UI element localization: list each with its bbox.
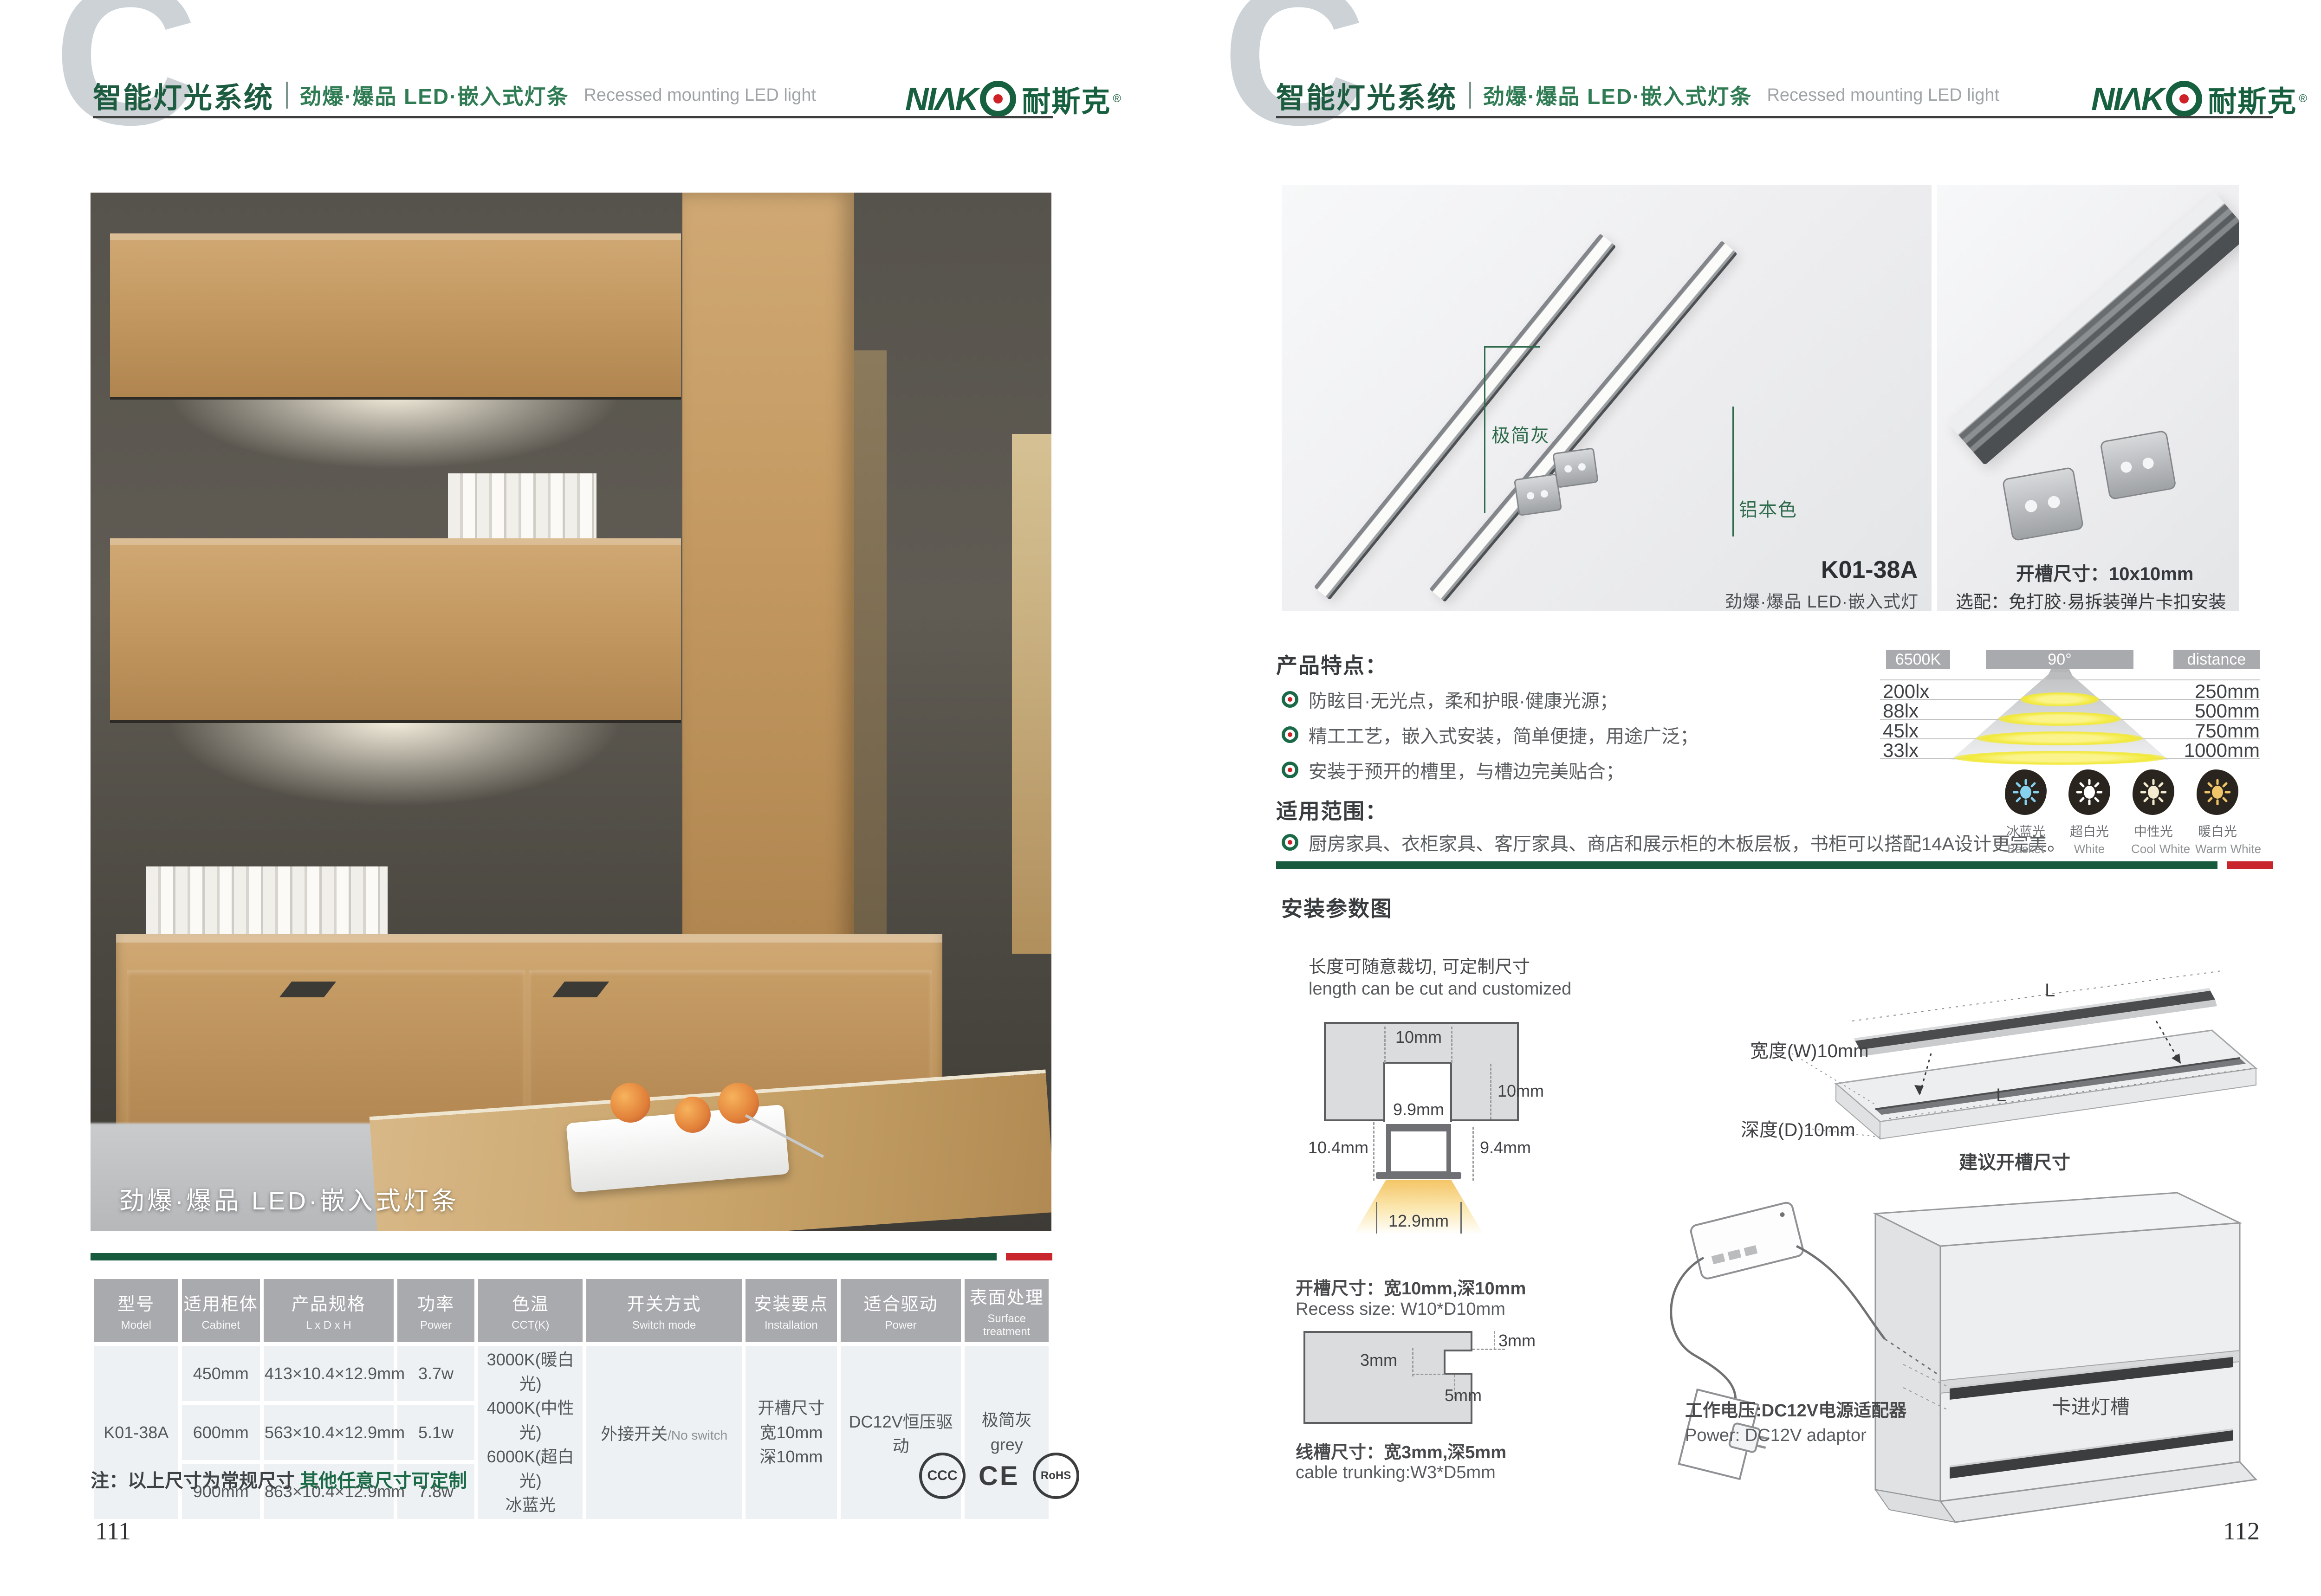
- rohs-icon: RoHS: [1033, 1453, 1079, 1499]
- groove-board-diagram: L L 宽度(W)10mm 深度(D)10mm 建议开槽尺寸: [1736, 965, 2275, 1179]
- feature-item: 安装于预开的槽里，与槽边完美贴合；: [1282, 756, 1624, 783]
- cabinet-install-illustration: 工作电压:DC12V电源适配器 Power: DC12V adaptor 卡进灯…: [1643, 1170, 2284, 1555]
- photo-shelf-lower: [110, 538, 681, 720]
- label-grey-finish: 极简灰: [1491, 420, 1550, 447]
- header-subtitle-cn: 劲爆·爆品 LED·嵌入式灯条: [300, 80, 569, 110]
- led-strip-grey: [1314, 233, 1616, 600]
- trunking-size-cn: 线槽尺寸：宽3mm,深5mm: [1296, 1438, 1506, 1463]
- product-photo-main: 极简灰 铝本色 K01-38A 劲爆·爆品 LED·嵌入式灯条: [1282, 185, 1932, 611]
- separator-bar: [91, 1253, 1052, 1260]
- chart-lux-4: 33lx: [1883, 739, 1952, 762]
- recess-size-cn: 开槽尺寸：宽10mm,深10mm: [1296, 1274, 1526, 1299]
- profile-channel: [1386, 1124, 1451, 1176]
- page-header: 智能灯光系统 劲爆·爆品 LED·嵌入式灯条 Recessed mounting…: [1276, 74, 1999, 116]
- dim-line: [1451, 1027, 1452, 1063]
- cell-power-450: 3.7w: [397, 1346, 474, 1401]
- separator-green: [1276, 861, 2217, 869]
- light-distribution-chart: 6500K 90° distance 200lx 88lx 45lx 33lx …: [1880, 646, 2265, 846]
- trunking-notch: [1444, 1350, 1472, 1375]
- sun-icon: [2197, 769, 2238, 815]
- mounting-clip-small-2: [1552, 447, 1599, 488]
- header-divider: [1469, 82, 1471, 109]
- aluminum-profile-closeup: [1948, 192, 2239, 465]
- mounting-clip-large-2: [2100, 430, 2177, 500]
- col-switch: 开关方式Switch mode: [586, 1279, 742, 1342]
- col-driver: 适合驱动Power: [841, 1279, 961, 1342]
- feature-item: 精工工艺，嵌入式安装，简单便捷，用途广泛；: [1282, 721, 1699, 748]
- led-strip-aluminum: [1429, 240, 1738, 602]
- scope-title: 适用范围：: [1276, 795, 1387, 825]
- dim-line: [1412, 1348, 1413, 1376]
- power-voltage-en: Power: DC12V adaptor: [1685, 1426, 1867, 1446]
- col-surface: 表面处理Surface treatment: [965, 1279, 1049, 1342]
- brand-registered-mark: ®: [1113, 92, 1121, 105]
- label-leader-line: [1484, 346, 1540, 348]
- cell-cct: 3000K(暖白光) 4000K(中性光) 6000K(超白光) 冰蓝光: [478, 1346, 583, 1519]
- cable-trunking-diagram: 3mm 3mm 5mm: [1290, 1327, 1550, 1429]
- dim-depth: 10mm: [1498, 1081, 1544, 1101]
- product-photo-caption: 劲爆·爆品 LED·嵌入式灯条: [1724, 588, 1919, 611]
- label-leader-line: [1732, 407, 1734, 536]
- nisko-logo: NIΛK 耐斯克 ®: [2091, 78, 2307, 120]
- product-photo-detail: 开槽尺寸：10x10mm 选配：免打胶·易拆装弹片卡扣安装: [1937, 185, 2239, 611]
- table-row: K01-38A 450mm 413×10.4×12.9mm 3.7w 3000K…: [94, 1346, 1049, 1401]
- cct-icon-ice-blue: 冰蓝光Basket: [2003, 769, 2048, 856]
- dim-top-width: 10mm: [1391, 1027, 1446, 1047]
- col-cabinet: 适用柜体Cabinet: [182, 1279, 260, 1342]
- note-highlight: 其他任意尺寸可定制: [300, 1471, 467, 1491]
- cell-size-450: 413×10.4×12.9mm: [264, 1346, 394, 1401]
- page-number: 112: [2223, 1517, 2260, 1545]
- header-divider: [286, 82, 288, 109]
- chart-distance-2: 500mm: [2177, 700, 2260, 722]
- cell-power-600: 5.1w: [397, 1405, 474, 1460]
- install-title: 安装参数图: [1281, 892, 1393, 923]
- page-left: C 智能灯光系统 劲爆·爆品 LED·嵌入式灯条 Recessed mounti…: [0, 0, 1168, 1596]
- chart-header-distance: distance: [2173, 650, 2260, 669]
- dim-length-groove: L: [1996, 1085, 2006, 1106]
- product-model: K01-38A: [1815, 556, 1918, 584]
- header-rule: [93, 116, 1053, 118]
- chart-lux-1: 200lx: [1883, 680, 1952, 703]
- detail-option-text: 选配：免打胶·易拆装弹片卡扣安装: [1956, 588, 2234, 611]
- photo-cabinet-side: [854, 350, 887, 944]
- dim-line: [1376, 1202, 1377, 1234]
- chart-lux-2: 88lx: [1883, 700, 1952, 722]
- cross-section-diagram: 10mm 10mm 9.9mm 10.4mm 9.4mm 12.9mm: [1290, 1016, 1550, 1239]
- col-install: 安装要点Installation: [746, 1279, 837, 1342]
- power-voltage-cn: 工作电压:DC12V电源适配器: [1685, 1396, 1906, 1422]
- cut-note-en: length can be cut and customized: [1309, 979, 1571, 999]
- photo-shelf-upper: [110, 233, 681, 397]
- dim-right-height: 9.4mm: [1480, 1138, 1531, 1157]
- chart-distance-1: 250mm: [2177, 680, 2260, 703]
- chart-distance-4: 1000mm: [2177, 739, 2260, 762]
- dim-line: [1490, 1064, 1491, 1119]
- dim-depth-label: 深度(D)10mm: [1741, 1115, 1855, 1142]
- brand-o-icon: [2166, 81, 2202, 117]
- cct-icon-warm-white: 暖白光Warm White: [2195, 769, 2240, 856]
- chart-light-pool-4: [1954, 751, 2165, 765]
- col-size: 产品规格L x D x H: [264, 1279, 394, 1342]
- chart-light-pool-2: [1998, 712, 2121, 726]
- nisko-logo: NIΛK 耐斯克 ®: [905, 78, 1121, 120]
- bullet-icon: [1282, 726, 1298, 743]
- brand-latin-text: NIΛK: [905, 80, 977, 117]
- cut-note-cn: 长度可随意裁切, 可定制尺寸: [1309, 952, 1530, 978]
- chart-light-pool-3: [1976, 731, 2143, 745]
- chart-distance-3: 750mm: [2177, 720, 2260, 742]
- dim-bottom-width: 12.9mm: [1383, 1211, 1454, 1231]
- mounting-clip-large-1: [2002, 466, 2084, 541]
- col-cct: 色温CCT(K): [478, 1279, 583, 1342]
- col-model: 型号Model: [94, 1279, 178, 1342]
- trunking-size-en: cable trunking:W3*D5mm: [1296, 1463, 1496, 1483]
- sun-icon: [2005, 769, 2047, 815]
- photo-peach-2: [674, 1097, 711, 1133]
- dim-trunk-left: 3mm: [1360, 1350, 1397, 1370]
- chart-light-pool-1: [2020, 692, 2099, 706]
- dim-line: [1472, 1127, 1474, 1181]
- brand-cn-text: 耐斯克: [1022, 78, 1111, 120]
- separator-green: [91, 1253, 997, 1260]
- header-subtitle-cn: 劲爆·爆品 LED·嵌入式灯条: [1483, 80, 1752, 110]
- ccc-icon: CCC: [919, 1453, 966, 1499]
- label-aluminum-finish: 铝本色: [1739, 495, 1797, 522]
- dim-length-top: L: [2045, 980, 2055, 1001]
- chart-header-angle: 90°: [1986, 650, 2133, 669]
- bullet-icon: [1282, 762, 1298, 778]
- cct-icon-cool-white: 中性光Cool White: [2131, 769, 2176, 856]
- label-leader-line: [1484, 346, 1485, 513]
- cell-switch: 外接开关/No switch: [586, 1346, 742, 1519]
- dim-trunk-bottom: 5mm: [1445, 1386, 1482, 1405]
- dim-line: [1384, 1027, 1386, 1063]
- board-illustration: [1736, 965, 2275, 1179]
- brand-o-icon: [980, 81, 1016, 117]
- cell-model: K01-38A: [94, 1346, 178, 1519]
- photo-caption: 劲爆·爆品 LED·嵌入式灯条: [119, 1180, 459, 1217]
- chart-lux-3: 45lx: [1883, 720, 1952, 742]
- separator-red: [2227, 861, 2273, 869]
- sun-icon: [2133, 769, 2174, 815]
- photo-peach-1: [610, 1083, 650, 1123]
- detail-recess-size: 开槽尺寸：10x10mm: [2016, 559, 2225, 586]
- photo-books-shelf: [448, 473, 596, 538]
- header-subtitle-en: Recessed mounting LED light: [583, 85, 816, 105]
- header-title-cn: 智能灯光系统: [1276, 74, 1457, 116]
- dim-left-height: 10.4mm: [1299, 1138, 1368, 1157]
- separator-red: [1006, 1253, 1052, 1260]
- photo-glass-glow: [1012, 434, 1051, 954]
- mounting-clip-small-1: [1514, 473, 1562, 516]
- brand-latin-text: NIΛK: [2091, 80, 2163, 117]
- photo-led-glow-lower: [109, 719, 680, 840]
- chart-header-cct: 6500K: [1886, 650, 1950, 669]
- dim-line: [1412, 1374, 1445, 1375]
- cell-cabinet-600: 600mm: [182, 1405, 260, 1460]
- separator-bar: [1276, 861, 2273, 869]
- cabinet-illustration: [1643, 1170, 2284, 1555]
- note-prefix: 注：以上尺寸为常规尺寸: [91, 1471, 300, 1491]
- cell-size-600: 563×10.4×12.9mm: [264, 1405, 394, 1460]
- bullet-icon: [1282, 834, 1298, 851]
- cell-cabinet-450: 450mm: [182, 1346, 260, 1401]
- brand-cn-text: 耐斯克: [2208, 78, 2297, 120]
- header-subtitle-en: Recessed mounting LED light: [1767, 85, 1999, 105]
- sun-icon: [2068, 769, 2110, 815]
- panel-block: [1303, 1331, 1472, 1424]
- clip-in-groove-label: 卡进灯槽: [2052, 1391, 2130, 1420]
- features-title: 产品特点：: [1276, 649, 1387, 679]
- cell-install: 开槽尺寸 宽10mm 深10mm: [746, 1346, 837, 1519]
- table-header-row: 型号Model 适用柜体Cabinet 产品规格L x D x H 功率Powe…: [94, 1279, 1049, 1342]
- ce-icon: CE: [979, 1460, 1020, 1492]
- header-title-cn: 智能灯光系统: [93, 74, 274, 116]
- dim-width-label: 宽度(W)10mm: [1750, 1036, 1869, 1063]
- recess-size-en: Recess size: W10*D10mm: [1296, 1299, 1505, 1319]
- certification-icons: CCC CE RoHS: [919, 1453, 1079, 1499]
- bullet-icon: [1282, 691, 1298, 708]
- header-rule: [1276, 116, 2273, 118]
- dim-line: [1494, 1331, 1495, 1350]
- feature-item: 防眩目·无光点，柔和护眼·健康光源；: [1282, 686, 1618, 713]
- dim-inner-width: 9.9mm: [1386, 1100, 1451, 1119]
- brand-registered-mark: ®: [2299, 92, 2307, 105]
- page-number: 111: [95, 1517, 131, 1545]
- dim-trunk-top: 3mm: [1498, 1331, 1536, 1350]
- photo-books-sideboard: [146, 866, 388, 934]
- col-power: 功率Power: [397, 1279, 474, 1342]
- catalog-spread: C 智能灯光系统 劲爆·爆品 LED·嵌入式灯条 Recessed mounti…: [0, 0, 2321, 1596]
- showcase-photo: 劲爆·爆品 LED·嵌入式灯条: [91, 193, 1051, 1231]
- page-right: C 智能灯光系统 劲爆·爆品 LED·嵌入式灯条 Recessed mounti…: [1168, 0, 2321, 1596]
- profile-flange: [1376, 1172, 1461, 1179]
- dim-line: [1460, 1202, 1462, 1234]
- table-note: 注：以上尺寸为常规尺寸 其他任意尺寸可定制: [91, 1466, 467, 1493]
- dim-line: [1373, 1122, 1374, 1181]
- page-header: 智能灯光系统 劲爆·爆品 LED·嵌入式灯条 Recessed mounting…: [93, 74, 816, 116]
- photo-tall-cabinet: [682, 193, 854, 954]
- cct-icon-white: 超白光White: [2067, 769, 2112, 856]
